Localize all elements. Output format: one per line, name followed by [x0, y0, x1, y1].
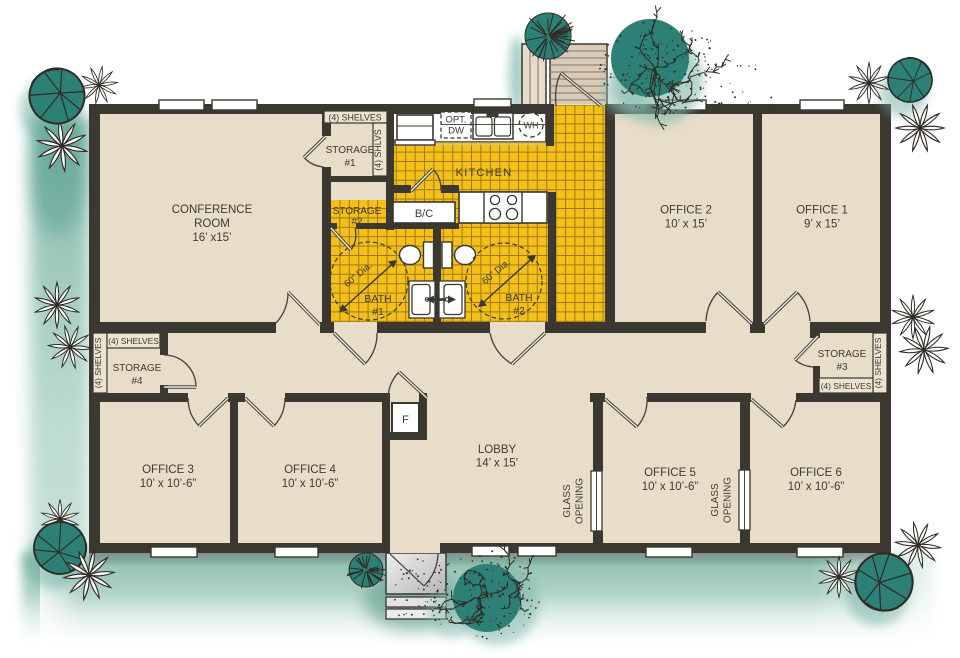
- svg-text:STORAGE: STORAGE: [326, 145, 375, 156]
- svg-text:OFFICE 1: OFFICE 1: [796, 205, 848, 217]
- svg-text:DW: DW: [448, 126, 464, 137]
- svg-text:16’ x15’: 16’ x15’: [192, 232, 231, 244]
- svg-text:WH: WH: [524, 121, 539, 131]
- svg-text:GLASS: GLASS: [710, 483, 721, 517]
- svg-text:(4) SHELVES: (4) SHELVES: [93, 337, 103, 388]
- svg-text:10’ x 10’-6”: 10’ x 10’-6”: [140, 478, 197, 490]
- svg-text:LOBBY: LOBBY: [478, 444, 517, 456]
- svg-text:OFFICE 2: OFFICE 2: [660, 205, 712, 217]
- svg-text:STORAGE: STORAGE: [818, 349, 867, 360]
- svg-text:(4) SHELVES: (4) SHELVES: [873, 337, 883, 388]
- svg-text:OPT.: OPT.: [445, 115, 466, 126]
- svg-text:OFFICE 4: OFFICE 4: [284, 464, 336, 476]
- svg-text:#4: #4: [131, 376, 143, 387]
- svg-text:ROOM: ROOM: [194, 218, 230, 230]
- svg-text:#2: #2: [351, 217, 363, 228]
- svg-text:OFFICE 6: OFFICE 6: [790, 467, 842, 479]
- svg-text:CONFERENCE: CONFERENCE: [172, 204, 253, 216]
- svg-text:GLASS: GLASS: [562, 484, 573, 518]
- svg-text:BATH: BATH: [364, 293, 391, 305]
- svg-text:OFFICE 3: OFFICE 3: [142, 464, 194, 476]
- svg-text:F: F: [402, 414, 409, 426]
- svg-text:OPENING: OPENING: [723, 477, 734, 523]
- svg-text:STORAGE: STORAGE: [333, 206, 382, 217]
- svg-text:KITCHEN: KITCHEN: [456, 167, 513, 179]
- svg-text:10’ x 10’-6”: 10’ x 10’-6”: [788, 481, 845, 493]
- svg-text:#3: #3: [836, 362, 848, 373]
- svg-text:(4) SHELVES: (4) SHELVES: [328, 113, 381, 123]
- svg-text:14’ x 15’: 14’ x 15’: [476, 458, 518, 470]
- svg-text:10’ x 15’: 10’ x 15’: [665, 219, 707, 231]
- svg-text:#1: #1: [344, 158, 356, 169]
- svg-text:OFFICE 5: OFFICE 5: [644, 467, 696, 479]
- svg-text:(4) SHLVS: (4) SHLVS: [373, 129, 383, 171]
- svg-text:#1: #1: [372, 306, 384, 318]
- svg-text:BATH: BATH: [505, 292, 532, 304]
- svg-text:STORAGE: STORAGE: [113, 363, 162, 374]
- svg-text:#2: #2: [513, 305, 525, 317]
- svg-text:OPENING: OPENING: [575, 478, 586, 524]
- svg-text:(4) SHELVES: (4) SHELVES: [108, 336, 159, 346]
- svg-text:(4) SHELVES: (4) SHELVES: [821, 381, 872, 391]
- svg-text:10’ x 10’-6”: 10’ x 10’-6”: [642, 481, 699, 493]
- svg-text:B/C: B/C: [415, 208, 433, 220]
- svg-text:9’ x 15’: 9’ x 15’: [804, 219, 840, 231]
- svg-text:10’ x 10’-6”: 10’ x 10’-6”: [282, 478, 339, 490]
